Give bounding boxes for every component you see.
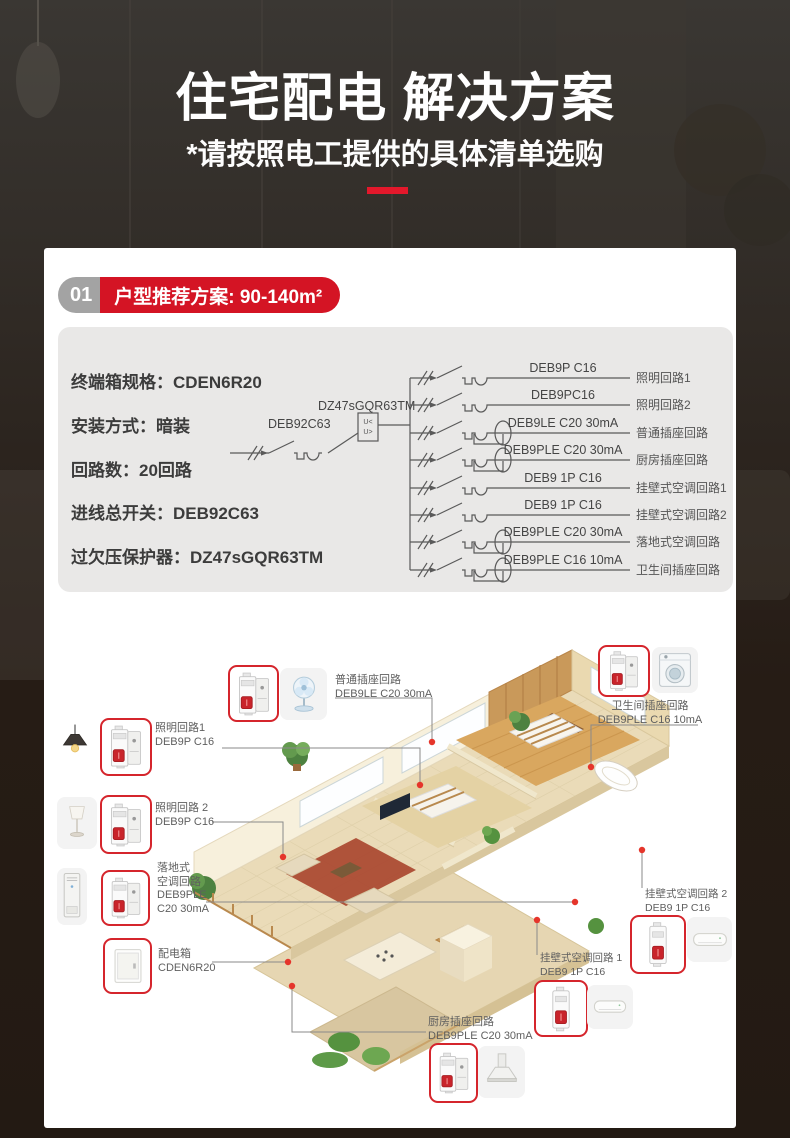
svg-text:落地式空调回路: 落地式空调回路 (636, 534, 720, 549)
main-breaker-label: DEB92C63 (268, 417, 331, 431)
pendant-lamp-image (56, 718, 94, 772)
svg-text:普通插座回路: 普通插座回路 (636, 425, 708, 440)
svg-text:DEB9 1P C16: DEB9 1P C16 (524, 471, 602, 485)
floor-ac-image (57, 868, 87, 925)
protector-symbol-u-over: U> (363, 429, 372, 436)
hero-accent-dash (367, 187, 408, 194)
callout-label-chufang: 厨房插座回路DEB9PLE C20 30mA (428, 1016, 533, 1043)
breaker-image-weishengjian (598, 645, 650, 697)
circuit-branch: DEB9PLE C20 30mA落地式空调回路 (410, 525, 720, 554)
callout-label-peidianxiang: 配电箱CDEN6R20 (158, 948, 215, 975)
breaker-image-putong (228, 665, 279, 722)
protector-symbol-u-under: U< (363, 419, 372, 426)
hero-title: 住宅配电 解决方案 (0, 56, 790, 131)
svg-text:照明回路1: 照明回路1 (636, 370, 691, 385)
breaker-image-zhaoming1 (100, 718, 152, 776)
breaker-image-guabi1 (534, 980, 588, 1037)
svg-text:厨房插座回路: 厨房插座回路 (636, 452, 708, 467)
breaker-image-luodishi (101, 870, 150, 926)
section-badge: 01 户型推荐方案: 90-140m² (58, 277, 340, 313)
callout-label-putong: 普通插座回路DEB9LE C20 30mA (335, 674, 432, 701)
callout-label-luodishi: 落地式空调回路 DEB9PLEC20 30mA (157, 862, 209, 916)
wall-ac-image (587, 985, 633, 1029)
circuit-branch: DEB9PLE C16 10mA卫生间插座回路 (410, 553, 720, 582)
callout-label-zhaoming1: 照明回路1DEB9P C16 (155, 722, 214, 749)
callout-label-guabi1: 挂壁式空调回路 1DEB9 1P C16 (540, 952, 622, 979)
circuit-branch: DEB9LE C20 30mA普通插座回路 (410, 416, 708, 445)
callout-label-zhaoming2: 照明回路 2DEB9P C16 (155, 802, 214, 829)
circuit-branch: DEB9PLE C20 30mA厨房插座回路 (410, 443, 708, 472)
svg-text:DEB9PC16: DEB9PC16 (531, 388, 595, 402)
breaker-image-chufang (429, 1043, 478, 1103)
distribution-box-image (103, 938, 152, 994)
table-lamp-image (57, 797, 97, 849)
page: 住宅配电 解决方案 *请按照电工提供的具体清单选购 01 户型推荐方案: 90-… (0, 0, 790, 1138)
svg-text:照明回路2: 照明回路2 (636, 397, 691, 412)
svg-text:DEB9LE C20 30mA: DEB9LE C20 30mA (508, 416, 619, 430)
svg-text:挂壁式空调回路2: 挂壁式空调回路2 (636, 507, 727, 522)
fan-image (280, 668, 327, 720)
range-hood-image (478, 1046, 525, 1098)
wall-ac-image (687, 917, 732, 962)
circuit-branch: DEB9 1P C16挂壁式空调回路1 (410, 471, 727, 495)
breaker-image-zhaoming2 (100, 795, 152, 854)
washing-machine-image (652, 647, 698, 693)
hero-subtitle: *请按照电工提供的具体清单选购 (0, 131, 790, 173)
callout-label-weishengjian: 卫生间插座回路DEB9PLE C16 10mA (589, 700, 711, 727)
circuit-branch: DEB9P C16照明回路1 (410, 361, 691, 385)
svg-text:DEB9PLE C20 30mA: DEB9PLE C20 30mA (504, 525, 623, 539)
spec-panel: 终端箱规格：CDEN6R20 安装方式：暗装 回路数：20回路 进线总开关：DE… (58, 327, 733, 592)
section-title: 户型推荐方案: 90-140m² (100, 277, 340, 313)
circuit-diagram: U< U> DEB92C63 DZ47sGQR63TM DEB9P C16照明回… (58, 327, 733, 592)
section-number: 01 (58, 277, 100, 313)
svg-text:DEB9PLE C16 10mA: DEB9PLE C16 10mA (504, 553, 623, 567)
breaker-image-guabi2 (630, 915, 686, 974)
circuit-branch: DEB9PC16照明回路2 (410, 388, 691, 412)
callout-label-guabi2: 挂壁式空调回路 2DEB9 1P C16 (645, 888, 727, 915)
circuit-branch: DEB9 1P C16挂壁式空调回路2 (410, 498, 727, 522)
floor-plan-section: 普通插座回路DEB9LE C20 30mA 卫生间插座回路DEB9PLE C16… (44, 630, 736, 1128)
content-card: 01 户型推荐方案: 90-140m² 终端箱规格：CDEN6R20 安装方式：… (44, 248, 736, 1128)
svg-text:DEB9P C16: DEB9P C16 (529, 361, 596, 375)
svg-text:DEB9 1P C16: DEB9 1P C16 (524, 498, 602, 512)
svg-text:挂壁式空调回路1: 挂壁式空调回路1 (636, 480, 727, 495)
protector-label: DZ47sGQR63TM (318, 399, 415, 413)
circuit-branches: DEB9P C16照明回路1 DEB9PC16照明回路2 DEB9LE C20 … (410, 361, 727, 582)
svg-text:DEB9PLE C20 30mA: DEB9PLE C20 30mA (504, 443, 623, 457)
voltage-protector-symbol (358, 413, 378, 441)
svg-text:卫生间插座回路: 卫生间插座回路 (636, 562, 720, 577)
